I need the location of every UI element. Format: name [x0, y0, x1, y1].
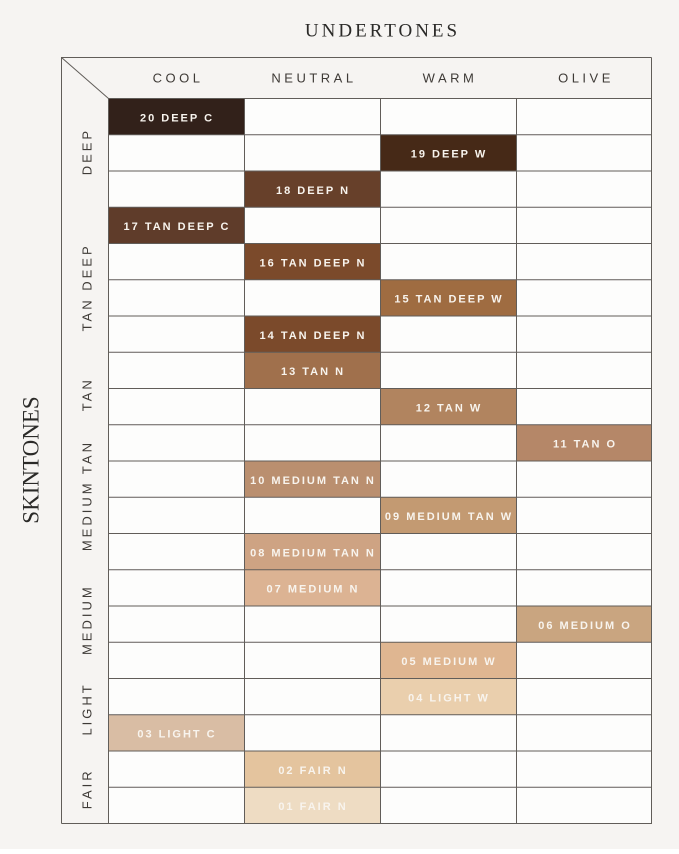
svg-text:19 DEEP W: 19 DEEP W [411, 149, 488, 161]
svg-text:MEDIUM TAN: MEDIUM TAN [80, 440, 95, 551]
svg-text:NEUTRAL: NEUTRAL [271, 71, 356, 86]
svg-text:18 DEEP N: 18 DEEP N [276, 185, 350, 197]
svg-text:COOL: COOL [153, 71, 204, 86]
svg-text:OLIVE: OLIVE [558, 71, 614, 86]
svg-text:17 TAN DEEP C: 17 TAN DEEP C [124, 221, 231, 233]
svg-text:MEDIUM: MEDIUM [80, 584, 95, 655]
svg-text:TAN: TAN [80, 377, 95, 411]
svg-text:05 MEDIUM W: 05 MEDIUM W [401, 656, 496, 668]
svg-text:02 FAIR N: 02 FAIR N [278, 765, 347, 777]
svg-text:08 MEDIUM TAN N: 08 MEDIUM TAN N [250, 547, 376, 559]
svg-text:FAIR: FAIR [80, 768, 95, 809]
svg-text:09 MEDIUM TAN W: 09 MEDIUM TAN W [385, 511, 513, 523]
svg-text:15 TAN DEEP W: 15 TAN DEEP W [394, 294, 503, 306]
svg-text:12 TAN W: 12 TAN W [416, 402, 483, 414]
svg-text:20 DEEP C: 20 DEEP C [140, 112, 214, 124]
svg-text:UNDERTONES: UNDERTONES [305, 21, 460, 42]
svg-text:07 MEDIUM N: 07 MEDIUM N [267, 584, 360, 596]
svg-text:06 MEDIUM O: 06 MEDIUM O [538, 620, 632, 632]
svg-text:13 TAN N: 13 TAN N [281, 366, 345, 378]
svg-text:14 TAN DEEP N: 14 TAN DEEP N [260, 330, 367, 342]
svg-text:WARM: WARM [423, 71, 478, 86]
svg-text:LIGHT: LIGHT [80, 682, 95, 735]
svg-text:DEEP: DEEP [80, 128, 95, 175]
svg-text:03 LIGHT C: 03 LIGHT C [137, 729, 216, 741]
svg-text:11 TAN O: 11 TAN O [553, 439, 617, 451]
svg-text:TAN DEEP: TAN DEEP [80, 243, 95, 331]
svg-text:01 FAIR N: 01 FAIR N [278, 801, 347, 813]
svg-text:16 TAN DEEP N: 16 TAN DEEP N [260, 257, 367, 269]
svg-text:SKINTONES: SKINTONES [19, 396, 44, 523]
svg-text:10 MEDIUM TAN N: 10 MEDIUM TAN N [250, 475, 376, 487]
svg-text:04 LIGHT W: 04 LIGHT W [408, 692, 490, 704]
